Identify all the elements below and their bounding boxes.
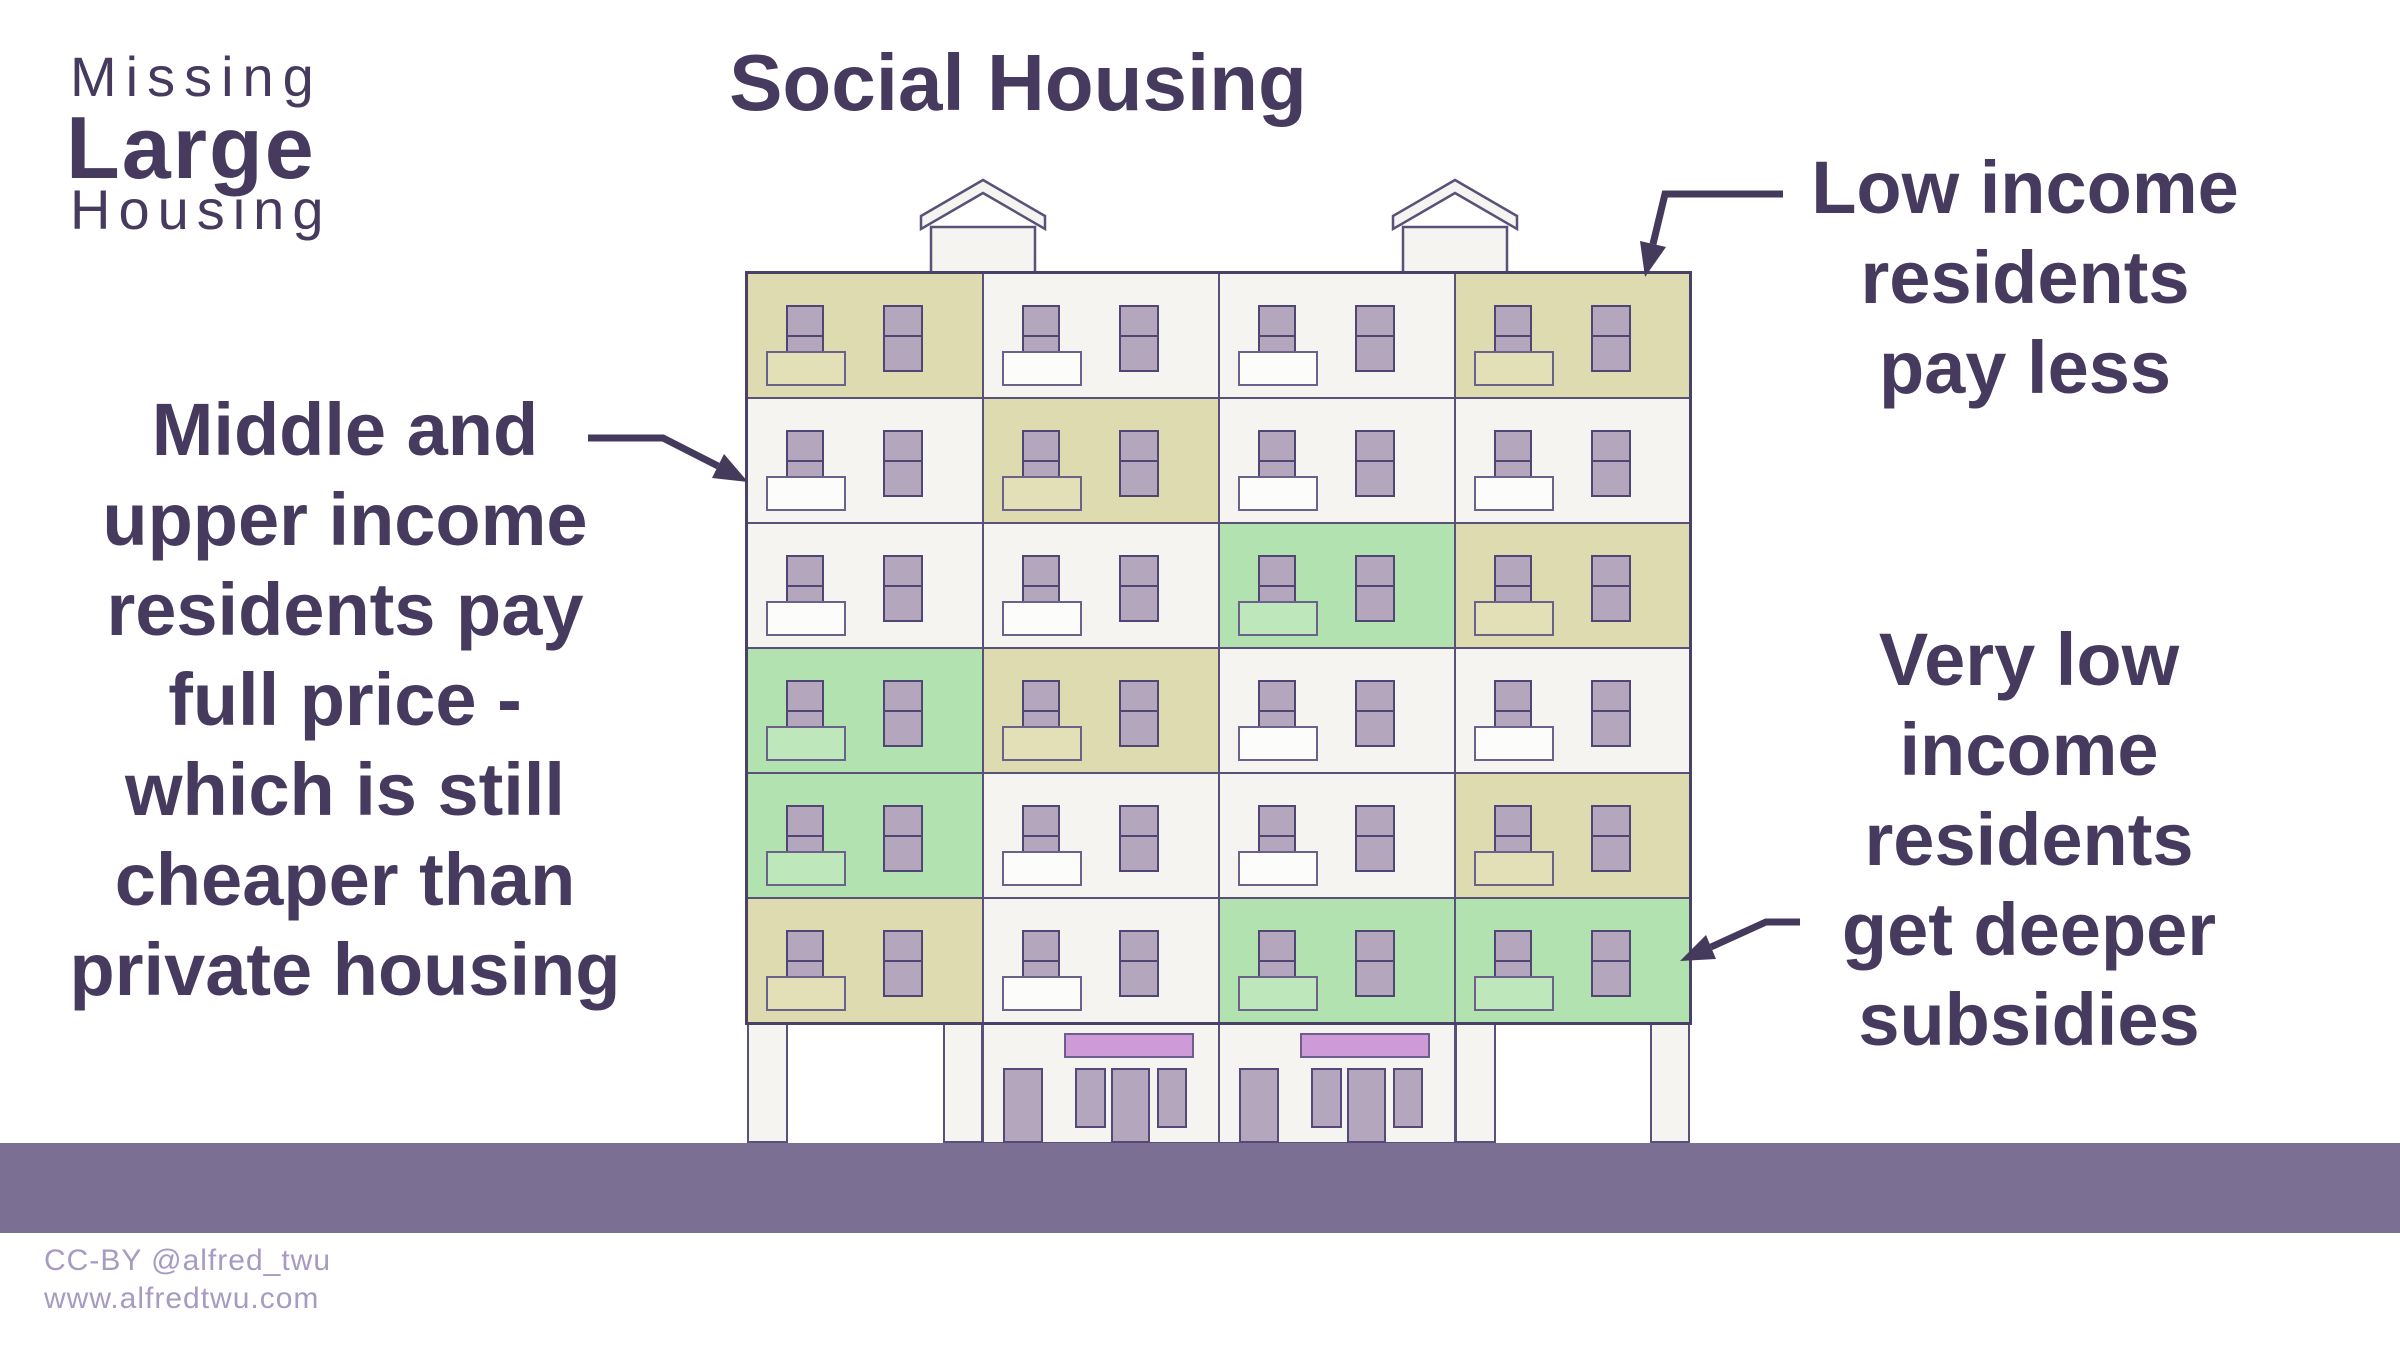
annotation-line: Very low	[1729, 615, 2329, 705]
annotation-line: residents	[1725, 233, 2325, 323]
annotation-line: Low income	[1725, 143, 2325, 233]
page-title: Social Housing	[718, 37, 1318, 129]
annotation-line: residents pay	[45, 565, 645, 655]
annotation-line: cheaper than	[45, 835, 645, 925]
annotation-line: full price -	[45, 655, 645, 745]
annotation-line: residents	[1729, 795, 2329, 885]
annotation-line: pay less	[1725, 323, 2325, 413]
annotation-line: private housing	[45, 925, 645, 1015]
credits: CC-BY @alfred_twu www.alfredtwu.com	[44, 1242, 331, 1318]
annotation-line: income	[1729, 705, 2329, 795]
annotation-very-low-income: Very lowincomeresidentsget deepersubsidi…	[1729, 615, 2329, 1065]
annotation-line: upper income	[45, 475, 645, 565]
license-text: CC-BY @alfred_twu	[44, 1242, 331, 1280]
annotation-line: get deeper	[1729, 885, 2329, 975]
annotation-line: Middle and	[45, 385, 645, 475]
website-text: www.alfredtwu.com	[44, 1280, 331, 1318]
annotation-line: subsidies	[1729, 975, 2329, 1065]
annotation-line: which is still	[45, 745, 645, 835]
logo-housing: Housing	[70, 177, 331, 242]
annotation-low-income: Low incomeresidentspay less	[1725, 143, 2325, 413]
annotation-middle-income: Middle andupper incomeresidents payfull …	[45, 385, 645, 1015]
